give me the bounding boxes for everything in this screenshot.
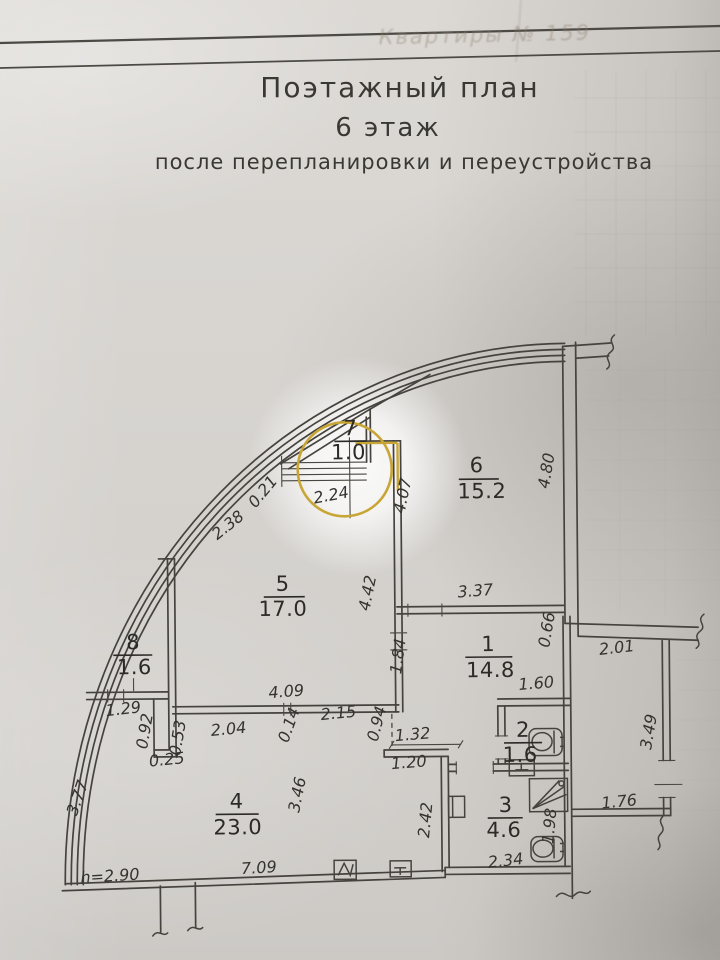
shower-icon-room3 (529, 778, 567, 811)
dim-1-98: 1.98 (538, 807, 560, 844)
svg-text:5: 5 (276, 572, 290, 596)
svg-text:7: 7 (343, 416, 357, 440)
wall-break-symbol-corridor (658, 817, 664, 850)
dim-4-42: 4.42 (355, 574, 381, 613)
dim-1-84: 1.84 (386, 637, 409, 675)
dim-2-42: 2.42 (414, 801, 436, 838)
floor-plan-document-photo: Квартиры № 159 Поэтажный план 6 этаж пос… (0, 0, 720, 960)
dim-3-46: 3.46 (284, 775, 310, 814)
svg-text:4: 4 (230, 789, 244, 813)
dim-4-09: 4.09 (268, 680, 305, 702)
wall-break-symbol-top (607, 335, 615, 369)
svg-text:14.8: 14.8 (466, 658, 515, 682)
room-label-3: 3 4.6 (486, 793, 523, 842)
pier-break-right (188, 927, 203, 930)
svg-text:4.6: 4.6 (486, 818, 521, 842)
room-label-4: 4 23.0 (213, 789, 262, 839)
page-title: Поэтажный план (260, 71, 539, 104)
dim-2-38: 2.38 (208, 506, 248, 543)
header-rule-bottom (0, 51, 720, 68)
dim-3-49: 3.49 (636, 713, 661, 751)
page-header: Квартиры № 159 Поэтажный план 6 этаж пос… (0, 0, 720, 174)
svg-text:6: 6 (470, 453, 484, 477)
dim-0-92: 0.92 (132, 712, 157, 750)
svg-text:8: 8 (126, 630, 140, 654)
dim-2-04: 2.04 (210, 718, 247, 740)
dim-0-66: 0.66 (534, 610, 559, 648)
dim-2-01: 2.01 (598, 636, 636, 659)
right-exterior-wall (563, 334, 705, 649)
dim-1-76: 1.76 (600, 790, 637, 812)
dim-1-60: 1.60 (518, 672, 555, 694)
pier-break-left (153, 933, 168, 936)
room-label-2: 2 1.6 (502, 718, 542, 767)
svg-text:2: 2 (516, 718, 530, 742)
header-rule-top (0, 26, 720, 43)
svg-text:15.2: 15.2 (457, 479, 506, 503)
room-label-5: 5 17.0 (258, 572, 307, 621)
water-heater-icon (449, 796, 465, 817)
wall-break-symbol-bottom-right (556, 891, 590, 896)
dim-0-25: 0.25 (148, 748, 185, 770)
dim-3-37: 3.37 (457, 580, 495, 602)
electrical-panel-icon (334, 860, 356, 879)
bleed-through-grid (574, 70, 720, 810)
wall-break-symbol-right (696, 614, 704, 648)
flash-glare (248, 356, 468, 576)
dim-1-32: 1.32 (394, 723, 431, 745)
svg-text:3: 3 (499, 793, 513, 817)
dim-1-20: 1.20 (390, 751, 427, 773)
svg-text:1: 1 (481, 632, 495, 656)
dim-7-09: 7.09 (241, 857, 278, 878)
svg-text:1.0: 1.0 (331, 440, 366, 464)
room-label-1: 1 14.8 (465, 632, 515, 682)
dim-2-34: 2.34 (487, 849, 525, 872)
dim-0-94: 0.94 (363, 704, 390, 743)
floor-plan-drawing: Квартиры № 159 Поэтажный план 6 этаж пос… (0, 0, 720, 960)
dim-0-14: 0.14 (274, 705, 304, 745)
ventilation-icon (390, 861, 411, 877)
svg-text:23.0: 23.0 (213, 815, 262, 839)
bleed-through-header-text: Квартиры № 159 (378, 21, 591, 50)
floor-subtitle: 6 этаж (335, 113, 441, 143)
dim-4-80: 4.80 (534, 451, 559, 489)
dim-ceiling-height: h=2.90 (80, 865, 140, 888)
dim-2-15: 2.15 (320, 702, 357, 724)
svg-text:1.6: 1.6 (117, 655, 152, 679)
status-subtitle: после перепланировки и переустройства (155, 150, 653, 174)
svg-text:17.0: 17.0 (258, 597, 307, 621)
svg-text:1.6: 1.6 (503, 743, 538, 767)
